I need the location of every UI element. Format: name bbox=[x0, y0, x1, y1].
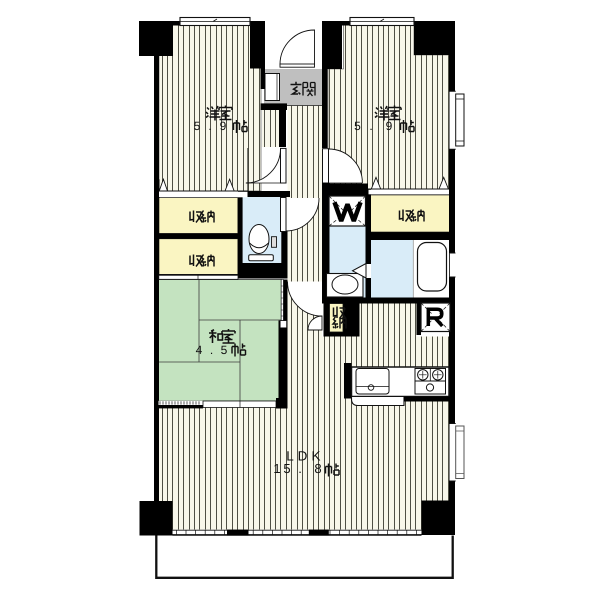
svg-text:.: . bbox=[210, 343, 213, 357]
svg-text:5: 5 bbox=[354, 119, 361, 133]
svg-text:9: 9 bbox=[220, 119, 227, 133]
svg-text:5: 5 bbox=[283, 461, 290, 476]
svg-text:5: 5 bbox=[221, 343, 228, 357]
svg-text:.: . bbox=[298, 461, 302, 476]
svg-text:5: 5 bbox=[194, 119, 201, 133]
svg-text:.: . bbox=[208, 119, 211, 133]
svg-text:4: 4 bbox=[196, 343, 203, 357]
svg-text:9: 9 bbox=[386, 119, 393, 133]
svg-text:8: 8 bbox=[314, 461, 321, 476]
svg-text:.: . bbox=[369, 119, 372, 133]
svg-text:1: 1 bbox=[273, 461, 280, 476]
